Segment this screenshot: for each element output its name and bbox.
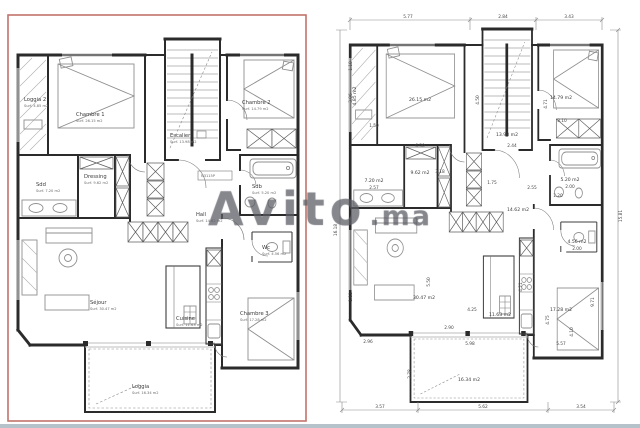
dim-inner: 2.90 bbox=[444, 325, 454, 331]
room-area-chambre2: Surf. 14.79 m2 bbox=[242, 107, 269, 111]
dim-inner: 6.50 bbox=[415, 143, 425, 149]
area-dressing: 9.62 m2 bbox=[410, 170, 429, 176]
room-label-loggia2: Loggia 2 bbox=[24, 97, 46, 103]
area-hall: 14.62 m2 bbox=[507, 207, 529, 213]
plan-ref-label: N3115P bbox=[201, 174, 216, 178]
area-sdb: 5.20 m2 bbox=[560, 177, 579, 183]
dim-inner: 1.20 bbox=[553, 193, 563, 199]
room-label-wc: Wc bbox=[262, 245, 270, 251]
room-area-loggia: Surf. 16.34 m2 bbox=[132, 391, 159, 395]
floorplan-screenshot: Loggia 2 Surf. 4.85 m2 Chambre 1 Surf. 2… bbox=[0, 0, 640, 428]
floor-tag-box bbox=[197, 131, 206, 138]
room-label-hall: Hall bbox=[196, 212, 206, 218]
room-label-chambre3: Chambre 3 bbox=[240, 311, 269, 317]
dim-right: 15.81 bbox=[618, 210, 624, 223]
right-plan-area-labels: 4.85 m2 26.15 m2 14.79 m2 13.98 m2 7.20 … bbox=[352, 86, 587, 383]
room-label-escalier: Escalier bbox=[170, 133, 191, 139]
area-escalier: 13.98 m2 bbox=[496, 132, 518, 138]
room-area-sdd: Surf. 7.20 m2 bbox=[36, 189, 60, 193]
area-wc-sub: 2.00 bbox=[572, 246, 582, 252]
dim-inner: 2.78 bbox=[407, 369, 413, 379]
area-sdd: 7.20 m2 bbox=[364, 178, 383, 184]
dim-inner: 1.10 bbox=[348, 61, 354, 71]
area-chambre3: 17.28 m2 bbox=[550, 307, 572, 313]
room-area-escalier: Surf. 13.98 m2 bbox=[170, 140, 197, 144]
bottom-edge-strip bbox=[0, 424, 640, 428]
dim-inner: 1.50 bbox=[369, 123, 379, 129]
room-label-sdd: Sdd bbox=[36, 182, 46, 188]
area-chambre1: 26.15 m2 bbox=[409, 97, 431, 103]
room-label-chambre2: Chambre 2 bbox=[242, 100, 271, 106]
area-sdb-sub: 2.00 bbox=[565, 184, 575, 190]
area-loggia2: 4.85 m2 bbox=[352, 86, 358, 105]
watermark-brand: Avito bbox=[208, 186, 366, 232]
area-wc: 4.56 m2 bbox=[567, 239, 586, 245]
room-label-dressing: Dressing bbox=[84, 174, 107, 180]
dim-inner: 5.98 bbox=[465, 341, 475, 347]
dim-inner: 1.75 bbox=[487, 180, 497, 186]
dim-top-2: 2.84 bbox=[498, 14, 508, 20]
dim-inner: 4.75 bbox=[545, 315, 551, 325]
dim-inner: 5.57 bbox=[556, 341, 566, 347]
dim-bottom-3: 3.54 bbox=[576, 404, 586, 410]
dim-bottom-2: 5.62 bbox=[478, 404, 488, 410]
room-label-cuisine: Cuisine bbox=[176, 316, 195, 322]
dim-top-3: 3.43 bbox=[564, 14, 574, 20]
dim-inner: 4.21 bbox=[518, 282, 524, 292]
room-label-loggia: Loggia bbox=[132, 384, 149, 390]
watermark-tld: .ma bbox=[369, 203, 432, 230]
dim-inner: 9.71 bbox=[590, 297, 596, 307]
dim-inner: 2.44 bbox=[507, 143, 517, 149]
area-sejour: 30.47 m2 bbox=[413, 295, 435, 301]
dim-inner: 4.71 bbox=[543, 99, 549, 109]
dim-inner: 2.55 bbox=[527, 185, 537, 191]
dim-inner: 4.10 bbox=[569, 327, 575, 337]
dim-inner: 2.96 bbox=[363, 339, 373, 345]
dim-inner: 4.25 bbox=[467, 307, 477, 313]
dim-top-1: 5.77 bbox=[403, 14, 413, 20]
area-loggia: 16.34 m2 bbox=[458, 377, 480, 383]
dim-inner: 1.11 bbox=[348, 292, 354, 302]
room-label-sejour: Séjour bbox=[90, 299, 107, 306]
dim-inner: 5.50 bbox=[426, 277, 432, 287]
room-area-dressing: Surf. 9.62 m2 bbox=[84, 181, 108, 185]
room-area-wc: Surf. 4.56 m2 bbox=[262, 252, 286, 256]
room-area-chambre3: Surf. 17.28 m2 bbox=[240, 318, 267, 322]
dim-inner: 3.10 bbox=[557, 118, 567, 124]
room-label-chambre1: Chambre 1 bbox=[76, 112, 105, 118]
dim-inner: 4.50 bbox=[475, 95, 481, 105]
room-area-cuisine: Surf. 11.63 m2 bbox=[176, 323, 203, 327]
area-chambre2: 14.79 m2 bbox=[550, 95, 572, 101]
room-area-sejour: Surf. 30.47 m2 bbox=[90, 307, 117, 311]
area-cuisine: 11.63 m2 bbox=[489, 312, 511, 318]
dim-bottom-1: 3.57 bbox=[375, 404, 385, 410]
room-area-chambre1: Surf. 26.15 m2 bbox=[76, 119, 103, 123]
room-area-loggia2: Surf. 4.85 m2 bbox=[24, 104, 48, 108]
watermark: Avito.ma bbox=[208, 186, 432, 232]
dim-inner: 3.18 bbox=[435, 169, 445, 175]
